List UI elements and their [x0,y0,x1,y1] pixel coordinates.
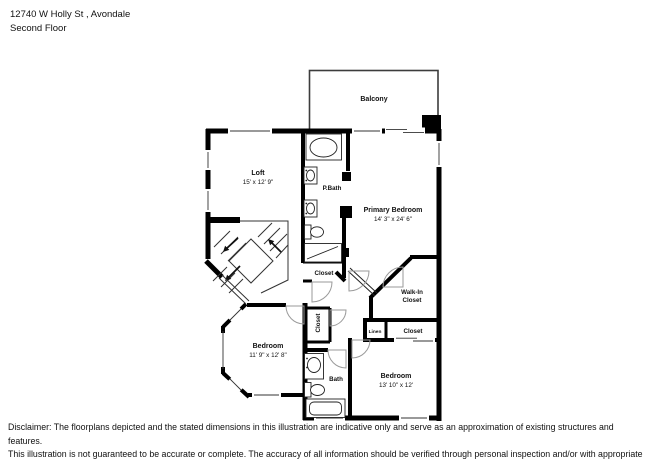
bath-label: Bath [329,376,343,383]
wall-stub [340,206,352,218]
bathtub-basin [310,402,342,415]
primary-bath-label: P.Bath [323,185,342,192]
toilet-bowl [311,385,325,396]
primary-bedroom-label: Primary Bedroom [364,207,423,214]
disclaimer-line-1: Disclaimer: The floorplans depicted and … [8,421,648,448]
loft-dims: 15' x 12' 9" [243,179,274,186]
staircase [213,221,288,304]
balcony-label: Balcony [360,96,387,103]
wall-stub [342,172,351,181]
primary-bath-fixtures [304,134,342,262]
bedroom-right-label: Bedroom [381,373,412,380]
hall-closet-label: Closet [315,270,334,277]
sink-basin [307,170,315,181]
bathtub-basin [310,138,337,157]
bath-door-arc [328,350,346,368]
bedroom-right-dims: 13' 10" x 12' [379,382,413,389]
hall-closet-door-arc [312,282,332,302]
stair-landing [229,239,273,283]
floor-plan-drawing: Balcony Loft 15' x 12' 9" P.Bath Primary… [0,0,650,460]
bedroom-closet-door-arc [330,310,346,326]
toilet-tank [305,383,312,398]
sink-basin [307,203,315,214]
sink-basin [308,358,321,373]
walk-in-closet-label-2: Closet [403,297,422,304]
bedroom-left-dims: 11' 9" x 12' 8" [249,352,287,359]
toilet-bowl [311,227,324,237]
right-closet-label: Closet [404,328,423,335]
bedroom-closet-label: Closet [315,314,322,333]
stair-railing [219,275,249,304]
wall-stub [343,248,349,257]
floorplan-page: 12740 W Holly St , Avondale Second Floor [0,0,650,460]
disclaimer-line-2: This illustration is not guaranteed to b… [8,448,648,460]
toilet-tank [305,225,312,239]
walk-in-closet-label-1: Walk-In [401,289,423,296]
hall-diagonal-wall [348,268,377,296]
bedroom-right-door-arc [352,340,370,358]
disclaimer: Disclaimer: The floorplans depicted and … [8,421,648,460]
primary-bedroom-dims: 14' 3" x 24' 6" [374,216,412,223]
loft-label: Loft [251,170,265,177]
linen-label: Linen [369,329,382,335]
bedroom-left-label: Bedroom [253,343,284,350]
bedroom-left-door-arc [286,306,304,324]
hall-bath-fixtures [305,354,346,418]
